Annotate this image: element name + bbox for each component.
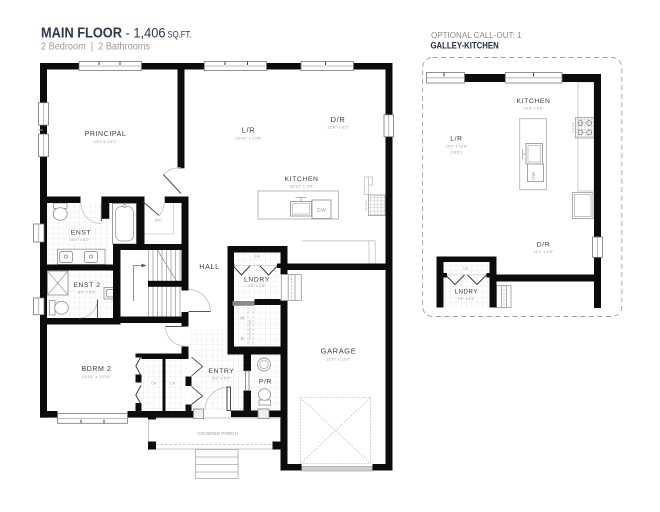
svg-text:CA: CA (151, 382, 157, 386)
svg-text:SQ.FT.: SQ.FT. (168, 30, 192, 41)
svg-text:PRINCIPAL: PRINCIPAL (85, 131, 127, 138)
svg-text:10'4" x 6'0": 10'4" x 6'0" (70, 238, 91, 242)
svg-text:MAIN FLOOR: MAIN FLOOR (41, 26, 123, 42)
svg-text:15'10" x 9'6": 15'10" x 9'6" (289, 184, 314, 189)
svg-text:15'10" x 13'8": 15'10" x 13'8" (235, 136, 262, 141)
svg-text:L/R: L/R (242, 126, 255, 135)
svg-text:8'0" x 6'0": 8'0" x 6'0" (78, 291, 96, 295)
svg-text:OPTIONAL CALL-OUT: 1: OPTIONAL CALL-OUT: 1 (431, 31, 522, 40)
svg-text:LNDRY: LNDRY (244, 277, 270, 284)
svg-text:GALLEY-KITCHEN: GALLEY-KITCHEN (431, 41, 499, 51)
svg-text:COVERED PORCH: COVERED PORCH (197, 431, 238, 436)
svg-text:GARAGE: GARAGE (321, 347, 357, 356)
svg-text:CA: CA (255, 255, 261, 259)
svg-text:RANGE: RANGE (571, 122, 575, 133)
svg-text:DW: DW (531, 172, 536, 180)
svg-text:(19'6"): (19'6") (451, 151, 463, 155)
svg-text:L/R: L/R (450, 136, 462, 143)
svg-text:6'0" x 6'0": 6'0" x 6'0" (213, 377, 231, 381)
svg-text:- 1,406: - 1,406 (126, 26, 166, 41)
svg-text:12'8" x 8'1": 12'8" x 8'1" (327, 125, 349, 130)
svg-text:CA: CA (463, 267, 469, 271)
svg-text:ENTRY: ENTRY (209, 368, 235, 375)
svg-text:CA: CA (170, 382, 176, 386)
svg-text:15'0" x 9'6": 15'0" x 9'6" (523, 107, 544, 111)
svg-text:D/R: D/R (537, 242, 551, 249)
svg-text:ENST: ENST (71, 230, 92, 237)
svg-text:13'0 X 14'2": 13'0 X 14'2" (94, 139, 118, 144)
svg-text:9'8" x 6'4": 9'8" x 6'4" (458, 297, 476, 301)
svg-text:9'8" x 2'6": 9'8" x 2'6" (248, 284, 266, 288)
svg-text:BDRM 2: BDRM 2 (81, 366, 111, 373)
svg-text:KITCHEN: KITCHEN (284, 176, 318, 183)
svg-text:W/C: W/C (155, 219, 163, 223)
svg-text:D/R: D/R (331, 115, 346, 124)
svg-text:P/R: P/R (259, 379, 272, 386)
svg-text:15'0" x 13'8": 15'0" x 13'8" (445, 145, 468, 149)
svg-text:D: D (241, 336, 244, 341)
svg-text:DW: DW (317, 208, 327, 214)
svg-text:LNDRY: LNDRY (455, 290, 478, 296)
svg-text:HALL: HALL (199, 262, 219, 271)
svg-text:ENST 2: ENST 2 (73, 282, 100, 289)
svg-text:36" REF: 36" REF (364, 200, 368, 211)
svg-text:11'2" x 6'9": 11'2" x 6'9" (534, 250, 554, 254)
svg-text:KITCHEN: KITCHEN (516, 98, 550, 105)
svg-text:13'10" x 13'10": 13'10" x 13'10" (82, 374, 112, 379)
svg-text:STACKED W/D: STACKED W/D (248, 319, 252, 340)
svg-text:W: W (240, 316, 244, 321)
svg-text:2 Bedroom | 2 Bathrooms: 2 Bedroom | 2 Bathrooms (41, 42, 150, 53)
svg-text:22'0" x 11'0": 22'0" x 11'0" (326, 357, 351, 362)
